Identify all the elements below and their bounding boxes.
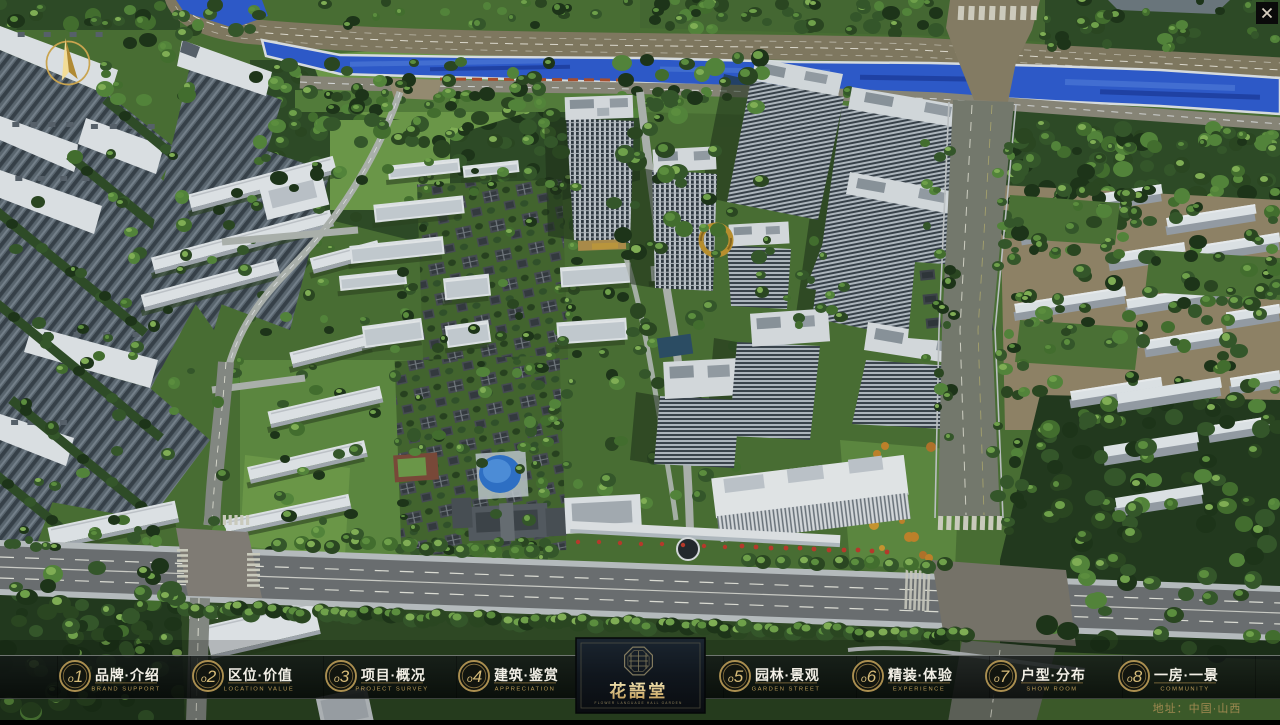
svg-text:地址：中国·山西: 地址：中国·山西: [1153, 701, 1242, 715]
svg-text:BRAND SUPPORT: BRAND SUPPORT: [91, 687, 160, 693]
svg-text:PROJECT SURVEY: PROJECT SURVEY: [355, 687, 428, 693]
svg-text:GARDEN STREET: GARDEN STREET: [752, 687, 821, 693]
svg-text:FLOWER LANGUAGE HALL GARDEN: FLOWER LANGUAGE HALL GARDEN: [595, 701, 683, 705]
svg-text:SHOW ROOM: SHOW ROOM: [1026, 687, 1077, 693]
svg-text:LOCATION VALUE: LOCATION VALUE: [224, 687, 294, 693]
svg-text:区位·价值: 区位·价值: [228, 667, 293, 683]
svg-text:一房·一景: 一房·一景: [1154, 667, 1219, 683]
svg-text:精装·体验: 精装·体验: [888, 667, 953, 683]
svg-text:APPRECIATION: APPRECIATION: [495, 687, 556, 693]
svg-text:品牌·介绍: 品牌·介绍: [95, 667, 160, 683]
svg-text:项目·概况: 项目·概况: [361, 667, 426, 683]
svg-text:建筑·鉴赏: 建筑·鉴赏: [494, 667, 559, 683]
svg-text:花語堂: 花語堂: [609, 681, 668, 701]
svg-text:园林·景观: 园林·景观: [755, 667, 820, 683]
svg-text:EXPERIENCE: EXPERIENCE: [893, 687, 945, 693]
svg-text:COMMUNITY: COMMUNITY: [1160, 687, 1209, 693]
svg-text:户型·分布: 户型·分布: [1021, 667, 1086, 683]
